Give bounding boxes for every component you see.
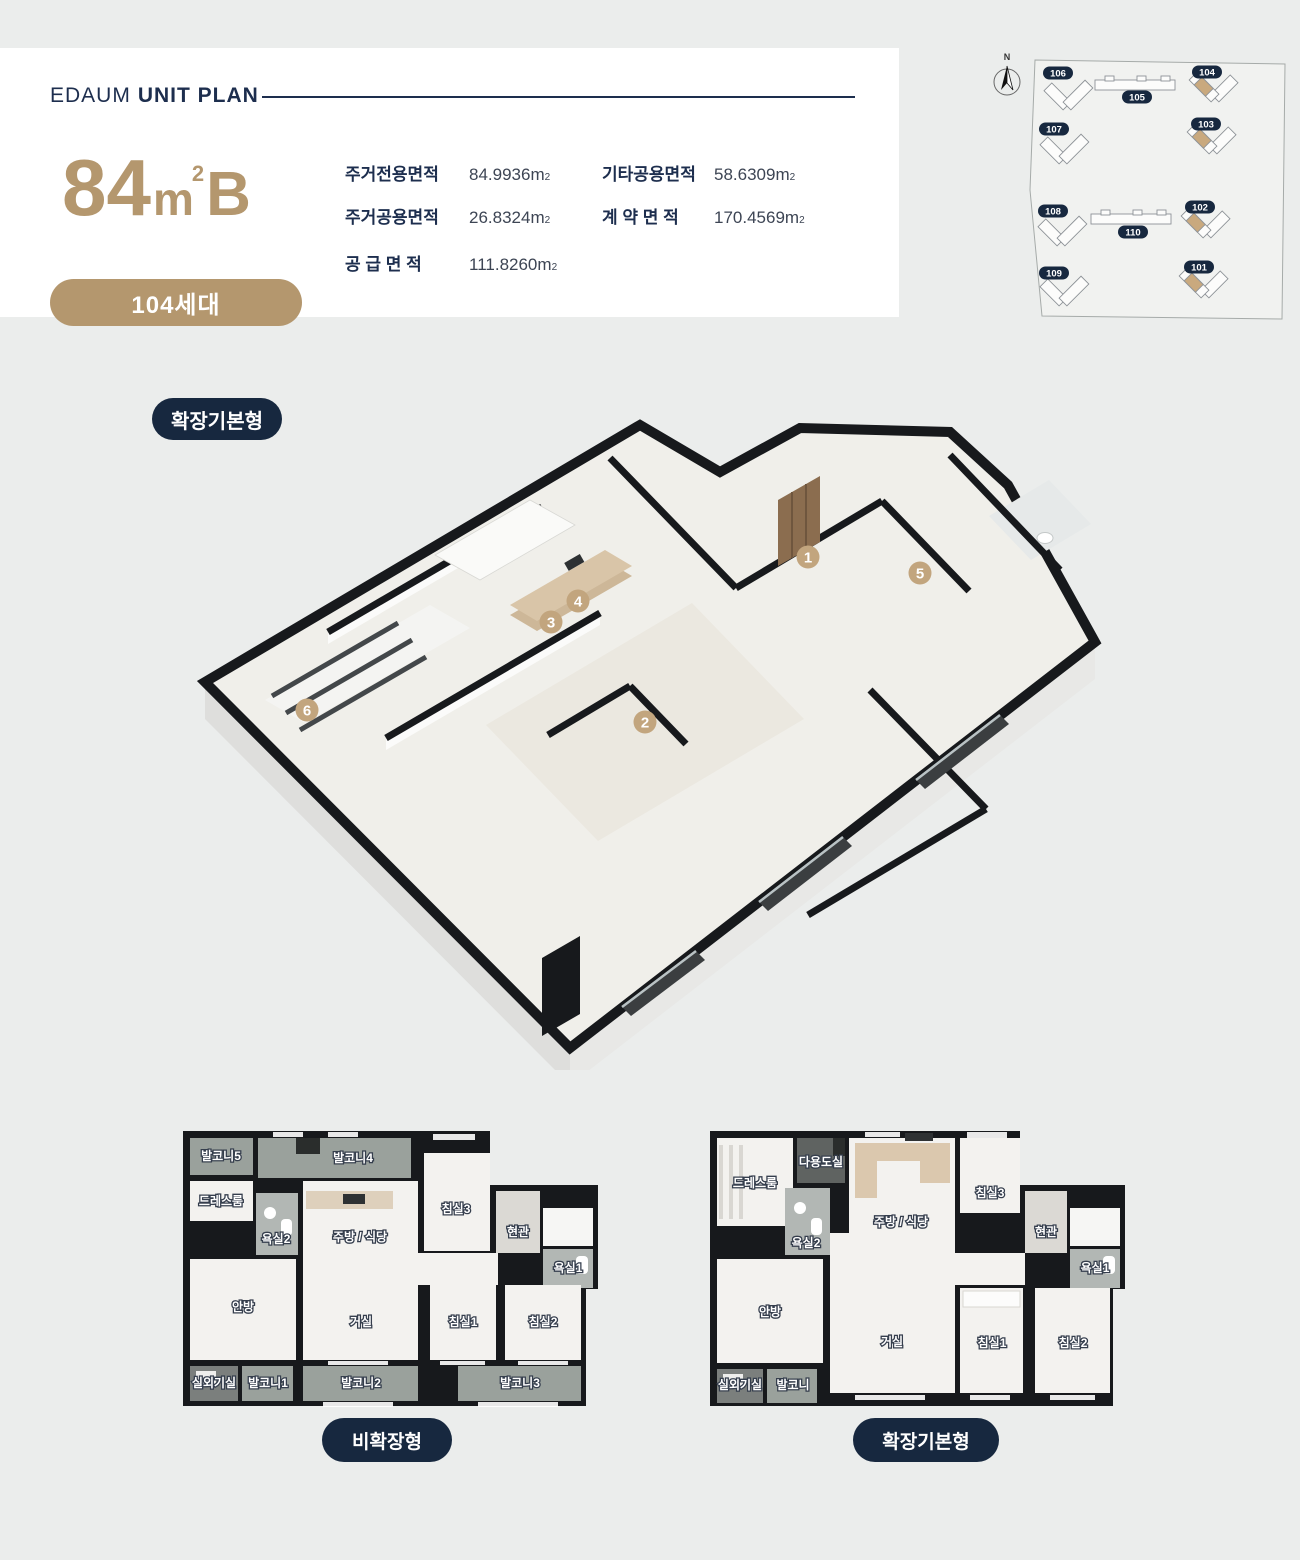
room-label: 욕실2 [792, 1235, 821, 1250]
area-value: 58.6309 [714, 165, 775, 185]
room-label: 거실 [881, 1334, 903, 1349]
area-label: 기타공용면적 [602, 160, 702, 185]
site-plan: N [985, 38, 1297, 338]
room-label: 침실3 [442, 1201, 471, 1216]
room-living [830, 1233, 955, 1393]
room-label: 현관 [1035, 1224, 1057, 1239]
area-row: 기타공용면적 58.6309m2 [602, 160, 795, 185]
compass-n-label: N [1004, 52, 1011, 62]
room-bed3 [960, 1138, 1020, 1213]
building-label-104: 104 [1199, 68, 1216, 79]
room-label: 주방 / 식당 [333, 1229, 387, 1244]
sink-fixture [794, 1202, 806, 1214]
room-label: 거실 [350, 1314, 372, 1329]
building-label-108: 108 [1045, 207, 1061, 218]
floor-plan-extended: 드레스룸 다용도실 주방 / 식당 침실3 현관 욕실2 욕실1 안방 거실 침… [705, 1123, 1128, 1412]
range-hood [905, 1133, 933, 1141]
area-value: 111.8260 [469, 255, 537, 275]
unit-size-unit-sup: 2 [192, 163, 204, 185]
room-label: 욕실2 [262, 1231, 291, 1246]
room-label: 발코니 [776, 1377, 809, 1392]
area-row: 공 급 면 적 111.8260m2 [345, 250, 557, 275]
page-title: UNIT PLAN [138, 84, 259, 108]
plan-extended-badge: 확장기본형 [853, 1418, 999, 1462]
room-label: 안방 [759, 1304, 781, 1319]
room-label: 실외기실 [192, 1375, 236, 1390]
iso-floor-plan: 1 2 3 4 5 6 [180, 400, 1120, 1070]
room-label: 발코니2 [341, 1375, 381, 1390]
unit-info-card: EDAUM UNIT PLAN 84 m 2 B 104세대 주거전용면적 84… [0, 48, 899, 317]
brand-text: EDAUM [50, 84, 131, 108]
utility-block [296, 1138, 320, 1154]
bed1-closet [963, 1291, 1020, 1307]
room-label: 발코니3 [500, 1375, 540, 1390]
hallway [418, 1253, 498, 1285]
room-label: 실외기실 [718, 1377, 762, 1392]
building-label-101: 101 [1191, 263, 1208, 274]
room-label: 발코니5 [201, 1148, 241, 1163]
building-label-103: 103 [1198, 120, 1214, 131]
header-divider-line [262, 96, 855, 98]
compass-icon: N [994, 52, 1020, 95]
marker-3: 3 [547, 615, 555, 632]
hallway [955, 1253, 1025, 1285]
room-label: 침실2 [1059, 1335, 1088, 1350]
room-entry [496, 1191, 540, 1253]
building-label-106: 106 [1050, 69, 1066, 80]
room-entry [1025, 1191, 1067, 1253]
area-label: 공 급 면 적 [345, 250, 457, 275]
unit-plan-page: EDAUM UNIT PLAN 84 m 2 B 104세대 주거전용면적 84… [0, 0, 1300, 1560]
toilet-fixture [811, 1218, 822, 1235]
area-value: 26.8324 [469, 208, 530, 228]
room-label: 드레스룸 [199, 1193, 243, 1208]
page-header: EDAUM UNIT PLAN [50, 84, 259, 108]
area-row: 주거전용면적 84.9936m2 [345, 160, 550, 185]
unit-type-letter: B [206, 164, 251, 226]
toilet-fixture [1037, 533, 1053, 544]
building-label-110: 110 [1125, 228, 1140, 239]
area-value: 170.4569 [714, 208, 785, 228]
floor-plan-basic: 발코니5 발코니4 드레스룸 욕실2 주방 / 식당 침실3 현관 욕실1 안방… [178, 1123, 600, 1412]
utility-block [833, 1138, 845, 1156]
marker-6: 6 [303, 703, 311, 720]
area-label: 계 약 면 적 [602, 203, 702, 228]
building-label-107: 107 [1046, 125, 1062, 136]
sink-fixture [264, 1207, 276, 1219]
room-label: 욕실1 [554, 1260, 583, 1275]
cooktop [343, 1194, 365, 1204]
room-label: 침실3 [976, 1185, 1005, 1200]
entry-closet [1070, 1208, 1120, 1246]
area-label: 주거전용면적 [345, 160, 457, 185]
marker-2: 2 [641, 715, 649, 732]
building-label-109: 109 [1046, 269, 1062, 280]
unit-size-number: 84 [62, 148, 151, 228]
unit-name: 84 m 2 B [62, 148, 251, 228]
marker-5: 5 [916, 566, 924, 583]
room-label: 욕실1 [1081, 1260, 1110, 1275]
room-label: 발코니1 [248, 1375, 288, 1390]
building-label-102: 102 [1192, 203, 1208, 214]
building-label-105: 105 [1129, 93, 1146, 104]
area-label: 주거공용면적 [345, 203, 457, 228]
entry-closet [543, 1208, 593, 1246]
unit-size-unit: m [153, 176, 194, 222]
area-value: 84.9936 [469, 165, 530, 185]
room-label: 주방 / 식당 [874, 1214, 928, 1229]
households-badge: 104세대 [50, 279, 302, 326]
plan-basic-badge: 비확장형 [322, 1418, 452, 1462]
room-label: 다용도실 [799, 1154, 843, 1169]
room-label: 침실1 [978, 1335, 1007, 1350]
area-row: 계 약 면 적 170.4569m2 [602, 203, 805, 228]
room-label: 현관 [507, 1224, 529, 1239]
marker-1: 1 [804, 550, 812, 567]
room-label: 침실1 [449, 1314, 478, 1329]
room-label: 침실2 [529, 1314, 558, 1329]
marker-4: 4 [574, 594, 583, 611]
room-label: 안방 [232, 1299, 254, 1314]
room-label: 발코니4 [333, 1150, 373, 1165]
area-row: 주거공용면적 26.8324m2 [345, 203, 550, 228]
room-label: 드레스룸 [733, 1175, 777, 1190]
